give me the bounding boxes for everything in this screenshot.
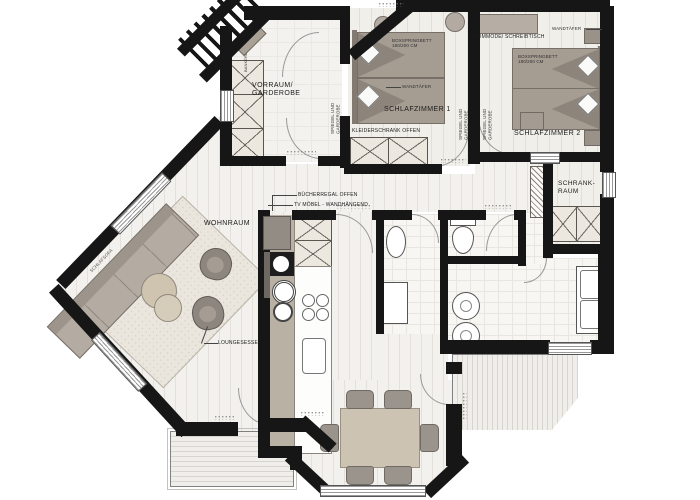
window xyxy=(320,485,426,497)
dimension-marks xyxy=(300,411,324,416)
wall-segment xyxy=(474,152,530,162)
bath-sink xyxy=(386,226,406,258)
kitchen-sink xyxy=(302,338,326,374)
annotation-boxspringbett-1: BOXSPRINGBETT 180/200 CM xyxy=(392,38,432,49)
chair-seat xyxy=(205,255,226,275)
burner xyxy=(302,294,315,307)
dining-chair xyxy=(384,466,412,485)
desk-kommode xyxy=(478,14,538,34)
dining-chair xyxy=(420,424,439,452)
wall-segment xyxy=(600,6,614,172)
room-label-wohnraum: WOHNRAUM xyxy=(204,220,250,228)
annotation-wandtaefer-2: WANDTÄFER xyxy=(552,26,581,31)
balcony-right xyxy=(452,354,580,432)
room-label-schlafzimmer2: SCHLAFZIMMER 2 xyxy=(514,130,581,138)
machine-door xyxy=(460,300,472,312)
wall-segment xyxy=(318,156,346,166)
open-closet xyxy=(388,137,428,166)
window xyxy=(602,172,616,198)
chair-seat xyxy=(198,304,218,323)
dimension-marks xyxy=(214,415,236,420)
dimension-marks xyxy=(484,204,512,209)
leader-line xyxy=(586,29,602,30)
burner xyxy=(302,308,315,321)
kitchen-cabinet-strip xyxy=(270,215,295,452)
leader-line xyxy=(386,87,401,88)
annotation-boxspringbett-2: BOXSPRINGBETT 180/200 CM xyxy=(518,54,558,65)
wall-segment xyxy=(590,340,614,354)
wall-segment xyxy=(440,340,550,354)
wall-segment xyxy=(440,256,526,264)
tall-cabinet xyxy=(294,240,332,268)
radiator xyxy=(382,282,408,324)
room-label-vorraum: VORRAUM/ GARDEROBE xyxy=(252,82,300,99)
wall-segment xyxy=(558,152,610,162)
dining-chair xyxy=(346,390,374,409)
floor-plan: VORRAUM/ GARDEROBE SCHLAFZIMMER 1 SCHLAF… xyxy=(0,0,700,500)
dimension-marks xyxy=(378,2,404,7)
burner xyxy=(316,308,329,321)
wall-segment xyxy=(543,160,553,258)
wall-segment xyxy=(474,0,610,12)
stool xyxy=(520,112,544,130)
room-label-schlafzimmer1: SCHLAFZIMMER 1 xyxy=(384,106,451,114)
leader-line xyxy=(268,205,293,206)
annotation-loungesessel: LOUNGESESSEL xyxy=(218,340,261,346)
wall-segment xyxy=(344,164,442,174)
wall-segment xyxy=(446,404,462,466)
annotation-buecherregal: BÜCHERREGAL OFFEN xyxy=(298,192,358,198)
wall-segment xyxy=(340,6,350,64)
dining-chair xyxy=(346,466,374,485)
wall-segment xyxy=(258,446,302,458)
window xyxy=(220,90,234,122)
leader-line xyxy=(204,343,218,344)
oven-dial xyxy=(273,256,289,272)
room-label-schrankraum: SCHRANK- RAUM xyxy=(558,180,595,196)
leader-line xyxy=(272,195,297,196)
window xyxy=(548,342,592,355)
wall-segment xyxy=(598,250,614,354)
bookshelf xyxy=(263,216,291,250)
annotation-spiegel-2: SPIEGEL UND GARDEROBE xyxy=(458,80,469,140)
appliance-dial xyxy=(273,302,293,322)
annotation-wandtaefer-1: WANDTÄFER xyxy=(402,84,431,89)
appliance-dial xyxy=(272,280,296,304)
wall-segment xyxy=(176,422,238,436)
leader-line xyxy=(272,195,273,211)
burner xyxy=(316,294,329,307)
wall-segment xyxy=(396,0,474,12)
side-table xyxy=(445,12,465,32)
dimension-marks xyxy=(462,392,467,420)
tv-wall-unit xyxy=(264,252,270,298)
annotation-bankerl: BANKERL xyxy=(244,42,249,72)
dimension-marks xyxy=(286,150,316,155)
coffee-table xyxy=(154,294,182,322)
window xyxy=(530,152,560,164)
open-closet xyxy=(350,137,390,166)
wall-segment xyxy=(222,156,286,166)
dimension-marks xyxy=(440,158,466,163)
wall-segment xyxy=(220,26,232,90)
dining-chair xyxy=(384,390,412,409)
annotation-spiegel-3: SPIEGEL UND GARDEROBE xyxy=(482,80,493,140)
wall-segment xyxy=(376,210,384,334)
annotation-kleiderschrank: KLEIDERSCHRANK OFFEN xyxy=(352,128,420,134)
annotation-kommode: KOMMODE/ SCHREIBTISCH xyxy=(474,34,545,40)
wall-segment xyxy=(468,0,480,164)
annotation-tv-moebel: TV MÖBEL - WANDHÄNGEND xyxy=(294,202,368,208)
wall-segment xyxy=(292,210,336,220)
dining-table xyxy=(340,408,420,468)
wall-segment xyxy=(553,244,607,254)
annotation-spiegel-1: SPIEGEL UND GARDEROBE xyxy=(330,74,341,134)
wall-segment xyxy=(446,362,462,374)
